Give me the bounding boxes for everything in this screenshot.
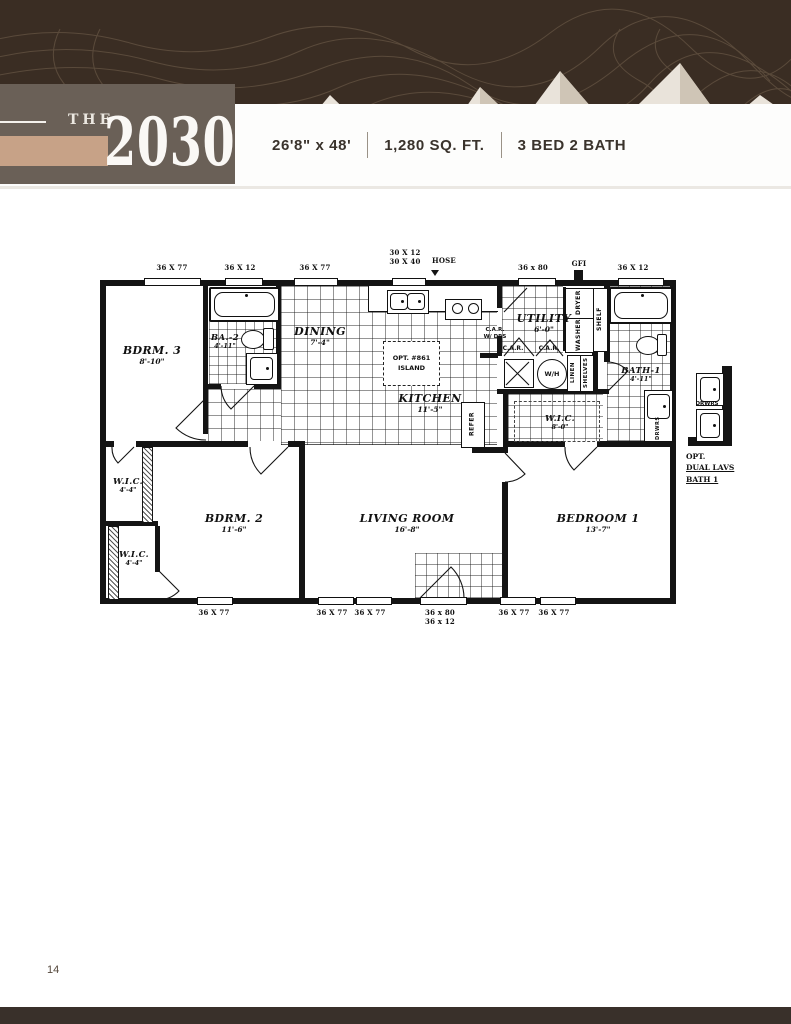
- room-name: UTILITY: [517, 312, 572, 325]
- caption-line: DUAL LAVS: [686, 463, 734, 472]
- room-label-bdrm2: BDRM. 2 11'-6": [186, 512, 282, 534]
- room-dim: 7'-4": [288, 338, 352, 347]
- window: [225, 278, 263, 286]
- room-dim: 13'-7": [548, 525, 648, 534]
- room-label-dining: DINING 7'-4": [288, 325, 352, 347]
- wall: [503, 394, 508, 447]
- spec-dimensions: 26'8" x 48': [272, 137, 351, 154]
- hall-tile-floor: [208, 389, 281, 441]
- wall: [299, 447, 305, 604]
- water-heater: W/H: [537, 359, 567, 389]
- window: [618, 278, 664, 286]
- room-label-ba2: BA.-2 4'-11": [200, 333, 250, 351]
- window: [144, 278, 201, 286]
- room-label-wic-hall: W.I.C. 8'-0": [528, 414, 592, 432]
- window-size-label: 36 X 77: [144, 263, 200, 272]
- footer-bar: [0, 1007, 791, 1024]
- window-size-label: 36 X 12: [605, 263, 661, 272]
- car-label: C.A.R.: [534, 345, 564, 352]
- page-number: 14: [47, 964, 59, 976]
- door-size-label: 36 x 80: [412, 608, 468, 617]
- wall: [203, 384, 221, 389]
- vanity-sink: [647, 394, 670, 419]
- spec-divider: [501, 132, 502, 158]
- room-name: KITCHEN: [398, 392, 461, 405]
- room-name: BDRM. 3: [123, 344, 181, 357]
- window: [294, 278, 338, 286]
- room-dim: 11'-5": [382, 405, 478, 414]
- room-dim: 8'-0": [528, 424, 592, 432]
- window-size-label: 36 X 77: [180, 608, 248, 617]
- burner: [452, 303, 463, 314]
- room-name: DINING: [294, 325, 346, 338]
- spec-divider: [367, 132, 368, 158]
- exterior-door-opening: [420, 597, 467, 605]
- room-dim: 16'-8": [352, 525, 462, 534]
- window: [197, 597, 233, 605]
- wall: [497, 286, 502, 308]
- window: [540, 597, 576, 605]
- room-label-bath1: BATH-1 4'-11": [610, 366, 672, 384]
- window-size-label: 36 X 77: [526, 608, 582, 617]
- model-number: 2030: [104, 109, 235, 175]
- room-label-living: LIVING ROOM 16'-8": [352, 512, 462, 534]
- wall: [502, 447, 508, 453]
- caption-line: OPT.: [686, 452, 705, 461]
- wall: [480, 353, 498, 358]
- window-size-label: 36 X 77: [287, 263, 343, 272]
- room-label-wic-lower: W.I.C. 4'-4": [108, 550, 160, 568]
- bathtub: [609, 287, 673, 324]
- room-dim: 4'-4": [108, 560, 160, 568]
- room-dim: 4'-11": [610, 376, 672, 384]
- bathtub: [209, 287, 280, 322]
- car-label: C.A.R.: [498, 345, 528, 352]
- window: [500, 597, 536, 605]
- room-label-kitchen: KITCHEN 11'-5": [382, 392, 478, 414]
- furnace: [504, 359, 534, 388]
- gfi-outlet-marker: [574, 270, 583, 280]
- model-title-block: THE 2030: [0, 84, 235, 184]
- title-accent-line: [0, 121, 46, 123]
- room-name: BEDROOM 1: [557, 512, 640, 525]
- island-label-2: ISLAND: [398, 364, 425, 373]
- room-dim: 4'-4": [102, 487, 154, 495]
- room-dim: 8'-10": [110, 357, 194, 366]
- room-label-utility: UTILITY 6'-0": [506, 312, 582, 334]
- gfi-label: GFI: [564, 259, 594, 268]
- room-dim: 6'-0": [506, 325, 582, 334]
- entry-tile-floor: [415, 553, 502, 598]
- room-label-wic-upper: W.I.C. 4'-4": [102, 477, 154, 495]
- door-size-label: 36 x 12: [412, 617, 468, 626]
- vanity-sink: [250, 357, 273, 380]
- hose-label: HOSE: [427, 256, 461, 265]
- wall: [502, 482, 508, 604]
- window-size-label: 36 X 77: [342, 608, 398, 617]
- window-size-label: 30 X 12: [382, 248, 428, 257]
- window: [356, 597, 392, 605]
- room-name: LIVING ROOM: [360, 512, 455, 525]
- detail-drwrs-label: DRWRS: [690, 401, 724, 408]
- room-name: BDRM. 2: [205, 512, 263, 525]
- brochure-page: 26'8" x 48' 1,280 SQ. FT. 3 BED 2 BATH T…: [0, 0, 791, 1024]
- exterior-door-opening: [518, 278, 556, 286]
- linen-label: LINEN: [567, 355, 579, 390]
- toilet-tank: [657, 334, 667, 356]
- burner: [468, 303, 479, 314]
- shelf-label: SHELF: [593, 288, 606, 350]
- wall: [100, 441, 114, 447]
- wdrs-label: W/ DRS: [484, 334, 507, 340]
- car-label: C.A.R.: [485, 327, 504, 333]
- sink-basin: [407, 293, 425, 310]
- window: [392, 278, 426, 286]
- toilet-tank: [263, 328, 274, 350]
- spec-area: 1,280 SQ. FT.: [384, 137, 484, 154]
- detail-sink: [700, 377, 720, 402]
- optional-island: OPT. #861 ISLAND: [383, 341, 440, 386]
- caption-line: BATH 1: [686, 475, 718, 484]
- sink-basin: [390, 293, 408, 310]
- room-label-bdrm3: BDRM. 3 8'-10": [110, 344, 194, 366]
- window-size-label: 30 X 40: [382, 257, 428, 266]
- detail-sink: [700, 413, 720, 438]
- room-label-bedroom1: BEDROOM 1 13'-7": [548, 512, 648, 534]
- room-dim: 11'-6": [186, 525, 282, 534]
- window-size-label: 36 X 12: [212, 263, 268, 272]
- title-accent-rect: [0, 136, 108, 166]
- spec-beds-baths: 3 BED 2 BATH: [518, 137, 627, 154]
- island-label-1: OPT. #861: [393, 354, 430, 363]
- spec-row: 26'8" x 48' 1,280 SQ. FT. 3 BED 2 BATH: [272, 132, 626, 158]
- room-dim: 4'-11": [200, 343, 250, 351]
- wall: [203, 286, 208, 434]
- shelves-label: SHELVES: [580, 355, 592, 390]
- door-size-label: 36 x 80: [505, 263, 561, 272]
- detail-caption: OPT. DUAL LAVS BATH 1: [686, 451, 734, 485]
- window: [318, 597, 354, 605]
- hose-bib-marker: [431, 270, 439, 276]
- drwrs-label: DRWRS: [650, 418, 666, 438]
